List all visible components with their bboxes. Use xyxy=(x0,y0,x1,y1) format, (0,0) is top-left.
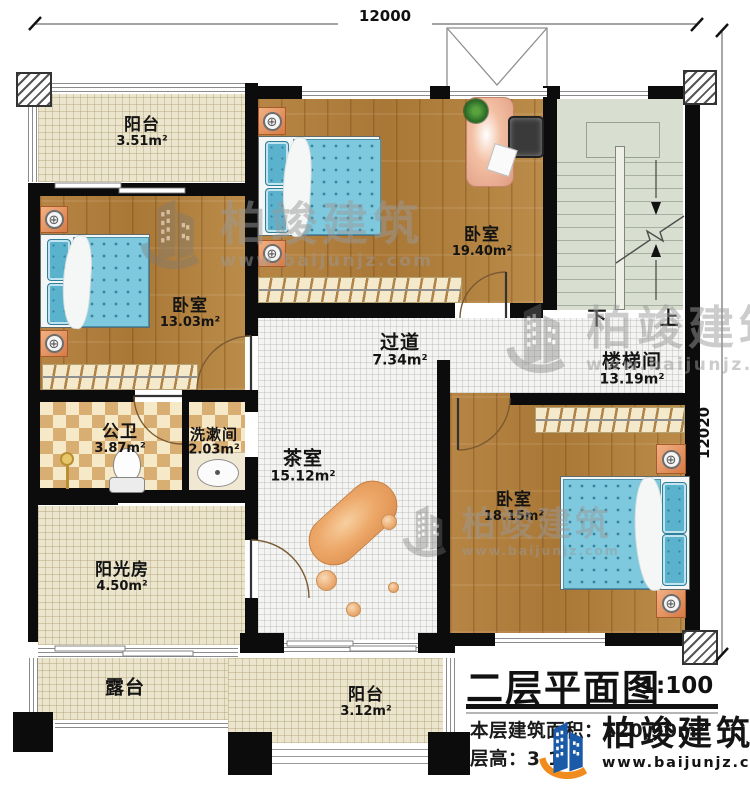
window xyxy=(302,88,430,97)
tea-stool xyxy=(316,570,337,591)
brand-url: www.baijunjz.com xyxy=(602,755,750,771)
tea-stool xyxy=(346,602,361,617)
toilet-tank xyxy=(109,477,145,493)
stairs-up-label: 上 xyxy=(659,304,678,331)
nightstand: ⊕ xyxy=(40,206,68,233)
sliding-door-band xyxy=(284,640,418,653)
bed xyxy=(560,476,690,590)
wall xyxy=(245,390,258,412)
stairs-down-label: 下 xyxy=(587,304,606,331)
room-label-bedroom-right: 卧室18.15m² xyxy=(484,491,544,525)
bed xyxy=(258,136,380,236)
window xyxy=(450,88,547,97)
wall xyxy=(605,633,685,646)
pillow xyxy=(662,482,687,534)
floor-drain-icon xyxy=(60,452,74,466)
tea-stool xyxy=(388,582,399,593)
wardrobe xyxy=(258,277,462,303)
room-label-sunroom: 阳光房4.50m² xyxy=(95,561,149,595)
wall xyxy=(430,86,450,99)
title-underline xyxy=(466,704,718,709)
lamp-icon: ⊕ xyxy=(263,244,282,263)
sink-drain xyxy=(215,470,220,475)
room-label-bedroom-top: 卧室19.40m² xyxy=(452,226,512,260)
room-label-corridor: 过道7.34m² xyxy=(372,333,427,370)
wall xyxy=(510,303,543,318)
lamp-icon: ⊕ xyxy=(45,334,64,353)
wall xyxy=(245,457,258,540)
nightstand: ⊕ xyxy=(656,444,686,474)
brand-name: 柏竣建筑 xyxy=(602,716,750,753)
wall xyxy=(240,633,284,653)
room-label-washroom: 洗漱间2.03m² xyxy=(188,426,239,457)
window xyxy=(560,88,648,97)
lamp-icon: ⊕ xyxy=(662,594,681,613)
wall xyxy=(28,183,40,505)
bay-window xyxy=(447,28,547,86)
wall xyxy=(28,505,38,642)
wall xyxy=(28,488,118,505)
brand-logo: 柏竣建筑 www.baijunjz.com xyxy=(534,716,750,788)
window xyxy=(495,635,605,644)
balcony-railing xyxy=(38,80,245,93)
column xyxy=(228,732,272,775)
nightstand: ⊕ xyxy=(40,330,68,357)
terrace-railing xyxy=(26,658,38,712)
room-label-balcony-top: 阳台3.51m² xyxy=(116,116,167,150)
wall xyxy=(28,183,258,196)
wall xyxy=(245,303,455,318)
room-label-tea-room: 茶室15.12m² xyxy=(270,449,335,486)
plant-icon xyxy=(464,99,488,123)
floor-drain-stem xyxy=(66,465,69,489)
stair-stringer xyxy=(615,146,625,310)
wall xyxy=(510,393,685,405)
wall xyxy=(450,633,495,646)
room-label-bedroom-left: 卧室13.03m² xyxy=(160,297,220,331)
nightstand: ⊕ xyxy=(258,240,286,267)
bathroom-door-opening xyxy=(135,390,182,402)
column xyxy=(13,712,53,752)
brand-logo-icon xyxy=(534,716,596,788)
tea-stool xyxy=(381,514,397,530)
drawing-scale: 1:100 xyxy=(640,673,713,699)
wall xyxy=(418,633,455,653)
bed xyxy=(40,234,150,328)
terrace-railing xyxy=(55,720,228,730)
balcony-railing xyxy=(25,95,38,182)
lamp-icon: ⊕ xyxy=(45,210,64,229)
dimension-top: 12000 xyxy=(338,6,432,26)
pillow xyxy=(662,534,687,586)
nightstand: ⊕ xyxy=(258,107,286,135)
column xyxy=(428,732,470,775)
floor-plan: ⊕ ⊕ ⊕ ⊕ ⊕ ⊕ xyxy=(0,0,750,795)
hatched-column xyxy=(683,70,717,105)
room-label-stairwell: 楼梯间13.19m² xyxy=(599,352,664,389)
room-label-balcony-bottom: 阳台3.12m² xyxy=(340,686,391,720)
nightstand: ⊕ xyxy=(656,588,686,618)
lamp-icon: ⊕ xyxy=(662,450,681,469)
room-label-terrace: 露台 xyxy=(105,677,145,698)
wall xyxy=(437,360,450,645)
dimension-right: 12020 xyxy=(695,393,713,473)
wardrobe xyxy=(42,364,198,390)
balcony-bottom-floor xyxy=(228,658,445,743)
lamp-icon: ⊕ xyxy=(263,112,282,131)
hatched-column xyxy=(682,630,718,665)
room-label-bathroom: 公卫3.87m² xyxy=(94,423,145,457)
floor-height-label: 层高： xyxy=(470,749,527,770)
sliding-door-band xyxy=(38,645,238,658)
hatched-column xyxy=(16,72,52,107)
wall xyxy=(245,83,258,336)
wall xyxy=(543,86,557,310)
wardrobe xyxy=(535,407,685,433)
